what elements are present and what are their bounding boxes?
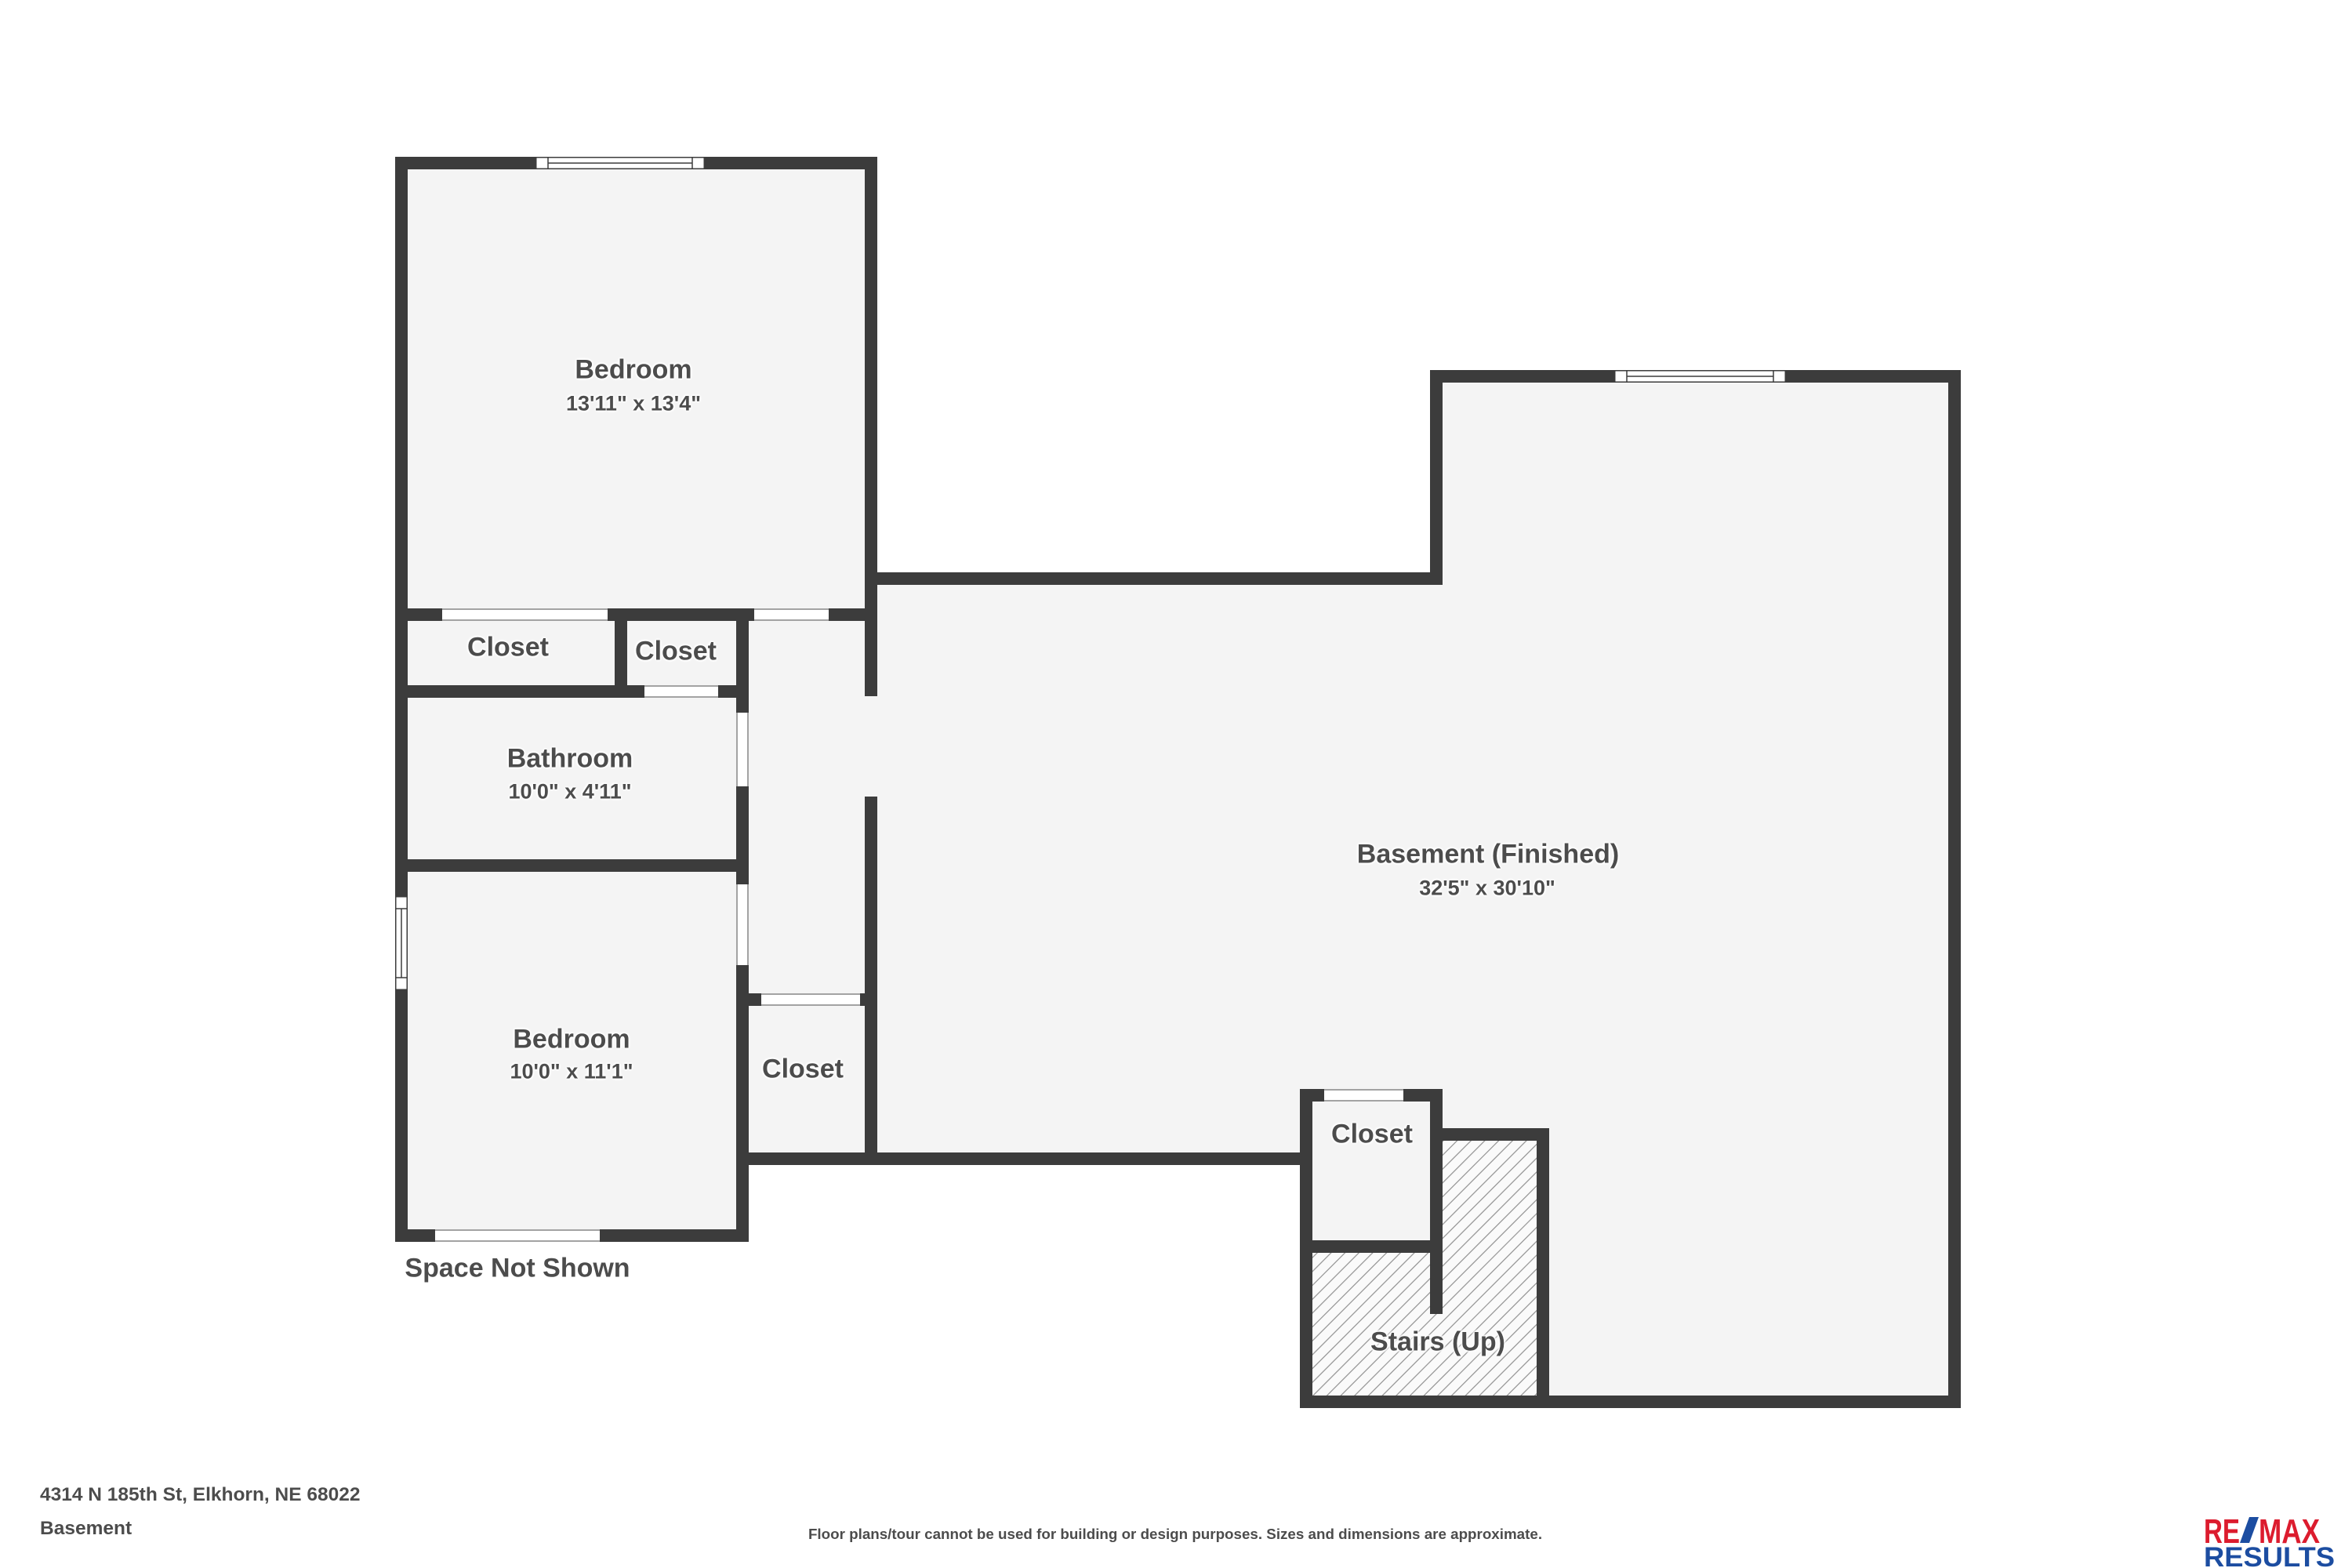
svg-text:RESULTS: RESULTS xyxy=(2204,1542,2335,1568)
